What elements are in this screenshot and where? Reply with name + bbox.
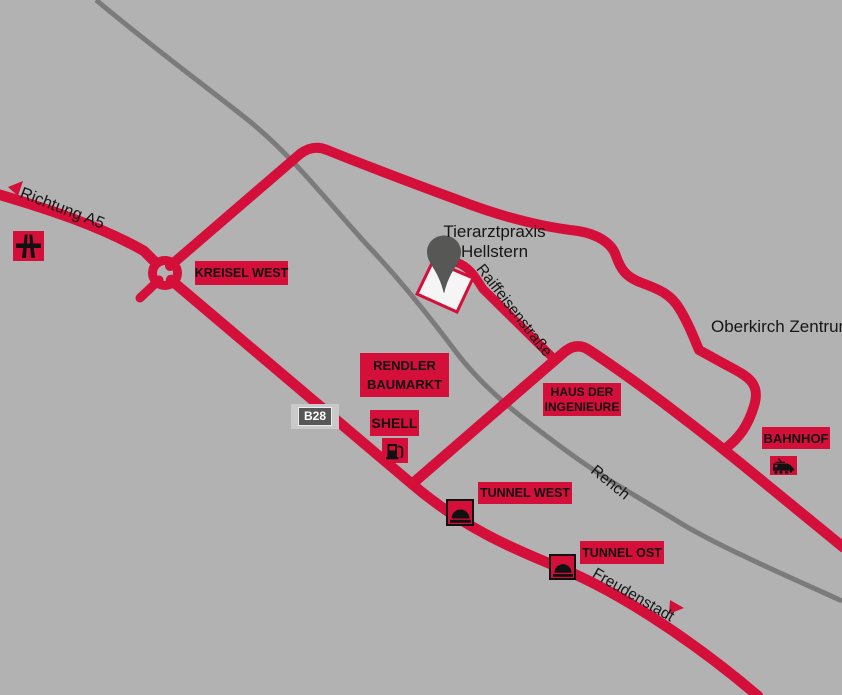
b28-main-road (171, 280, 758, 695)
tunnel-ost-icon (549, 554, 576, 580)
tierarztpraxis-line2: Hellstern (437, 242, 552, 262)
tunnel-ost-label: TUNNEL OST (580, 541, 664, 564)
motorway-icon (13, 231, 44, 261)
rendler-line1: RENDLER (373, 356, 436, 375)
shell-label: SHELL (370, 410, 419, 436)
haus-der-ingenieure-label: HAUS DER INGENIEURE (543, 383, 621, 416)
tunnel-west-label: TUNNEL WEST (478, 482, 572, 504)
train-icon (770, 456, 797, 475)
haus-line1: HAUS DER (551, 385, 614, 400)
roundabout (153, 261, 178, 286)
motorway-glyph (13, 231, 44, 261)
b28-badge-text: B28 (298, 407, 332, 426)
tunnel-west-icon (446, 499, 474, 526)
fuel-pump-icon (382, 438, 408, 463)
haus-line2: INGENIEURE (545, 400, 620, 415)
tierarztpraxis-line1: Tierarztpraxis (437, 222, 552, 242)
fuel-pump-glyph (382, 438, 408, 463)
tierarztpraxis-label: Tierarztpraxis Hellstern (437, 222, 552, 261)
oberkirch-directions-map: Richtung A5 Tierarztpraxis Hellstern Rai… (0, 0, 842, 695)
rendler-line2: BAUMARKT (367, 375, 442, 394)
bahnhof-label: BAHNHOF (762, 427, 830, 449)
tunnel-glyph (552, 557, 574, 578)
train-glyph (770, 456, 797, 475)
map-canvas (0, 0, 842, 695)
kreisel-west-label: KREISEL WEST (195, 261, 288, 285)
b28-badge: B28 (291, 404, 339, 429)
rendler-baumarkt-label: RENDLER BAUMARKT (360, 353, 449, 397)
tunnel-glyph (449, 502, 472, 524)
oberkirch-zentrum-label: Oberkirch Zentrum (711, 317, 842, 337)
